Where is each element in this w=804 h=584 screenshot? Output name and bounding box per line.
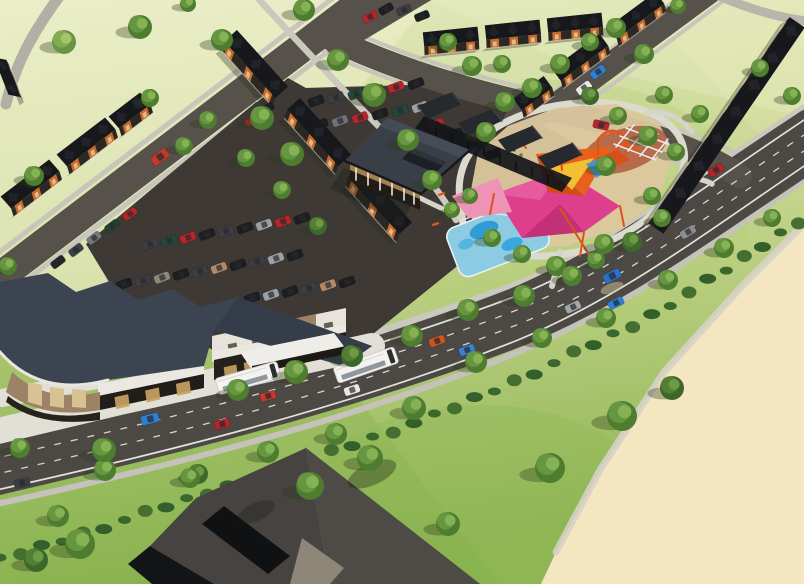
tree-canopy-light [721, 241, 730, 250]
tree-canopy-light [31, 169, 40, 178]
hedge-bush [774, 228, 787, 236]
tree-canopy-light [546, 457, 560, 471]
tree-canopy-light [650, 189, 658, 197]
tree-canopy-light [446, 35, 454, 43]
tree-canopy-light [366, 448, 378, 460]
tree-canopy-light [101, 441, 112, 452]
tree-canopy-light [445, 515, 456, 526]
hedge-bush [699, 274, 716, 284]
tree-canopy-light [468, 190, 475, 197]
hedge-bush [386, 427, 401, 439]
hedge-bush [664, 302, 677, 310]
tree-canopy-light [137, 18, 148, 29]
tree-canopy-light [569, 269, 578, 278]
retail-corner-window [28, 382, 42, 406]
hedge-bush [606, 329, 619, 337]
tree-canopy-light [629, 235, 638, 244]
hedge-bush [344, 441, 361, 451]
tree-canopy-light [588, 89, 596, 97]
hedge-bush [366, 433, 379, 441]
hedge-bush [720, 267, 733, 275]
tree-canopy-light [219, 32, 229, 42]
tree-canopy-light [333, 426, 343, 436]
tree-canopy-light [411, 399, 422, 410]
tree-canopy-light [603, 159, 612, 168]
retail-corner-window [50, 387, 64, 408]
tree-canopy-light [301, 2, 311, 12]
aerial-site-rendering [0, 0, 804, 584]
tree-canopy-light [490, 231, 498, 239]
tree-canopy-light [529, 81, 538, 90]
tree-canopy-light [265, 444, 275, 454]
tree-canopy-light [662, 88, 670, 96]
hedge-bush [157, 502, 174, 512]
hedge-bush [95, 524, 112, 534]
tree-canopy-light [520, 247, 528, 255]
tree-canopy-light [603, 311, 612, 320]
tree-canopy-light [316, 219, 324, 227]
hedge-bush [180, 494, 193, 502]
tree-canopy-light [594, 253, 602, 261]
hedge-bush [488, 387, 501, 395]
tree-canopy-light [616, 109, 624, 117]
tree-canopy-light [660, 211, 668, 219]
tree-canopy-light [76, 533, 90, 547]
tree-canopy-light [502, 95, 511, 104]
tree-canopy-light [280, 183, 288, 191]
hedge-bush [643, 309, 660, 319]
tree-canopy-light [669, 379, 680, 390]
tree-canopy-light [483, 125, 492, 134]
hedge-bush [428, 410, 441, 418]
tree-canopy-light [235, 382, 245, 392]
tree-canopy-light [588, 35, 596, 43]
tree-canopy-light [758, 61, 766, 69]
tree-canopy-light [206, 113, 214, 121]
tree-canopy-light [539, 331, 548, 340]
hedge-bush [737, 250, 752, 262]
hedge-bush [754, 242, 771, 252]
hedge-bush [681, 286, 696, 298]
tree-canopy-light [465, 302, 475, 312]
tree-canopy-light [6, 259, 14, 267]
tree-canopy-light [469, 59, 478, 68]
tree-canopy-light [306, 476, 319, 489]
tree-canopy-light [259, 109, 270, 120]
tree-canopy-light [618, 405, 632, 419]
tree-canopy-light [553, 259, 562, 268]
tree-canopy-light [349, 348, 359, 358]
hedge-bush [566, 345, 581, 357]
tree-canopy-light [450, 204, 457, 211]
tree-canopy-light [698, 107, 706, 115]
gable-window [469, 44, 473, 49]
retail-corner-window [72, 389, 86, 408]
hedge-bush [548, 359, 561, 367]
scene-canvas [0, 0, 804, 584]
tree-canopy-light [187, 471, 196, 480]
tree-canopy-light [473, 354, 483, 364]
tree-canopy-light [790, 89, 798, 97]
tree-canopy-light [557, 57, 566, 66]
tree-canopy-light [244, 151, 252, 159]
hedge-bush [447, 402, 462, 414]
gable-window [512, 39, 516, 44]
tree-canopy-light [335, 52, 345, 62]
tree-canopy-light [17, 441, 26, 450]
tree-canopy-light [148, 91, 156, 99]
hedge-bush [507, 374, 522, 386]
hedge-bush [324, 444, 339, 456]
roof-ridge [649, 0, 657, 7]
tree-canopy-light [289, 145, 300, 156]
tree-canopy-light [61, 33, 72, 44]
hedge-bush [138, 505, 153, 517]
tree-canopy-light [33, 551, 44, 562]
tree-canopy-light [55, 508, 65, 518]
gable-window [531, 37, 535, 42]
tree-canopy-light [674, 145, 682, 153]
tree-canopy-light [770, 211, 778, 219]
tree-canopy-light [500, 57, 508, 65]
tree-canopy-light [182, 139, 190, 147]
tree-canopy-light [613, 21, 622, 30]
tree-canopy-light [371, 86, 382, 97]
gable-window [493, 41, 497, 46]
tree-canopy-light [405, 132, 415, 142]
tree-canopy-light [293, 363, 304, 374]
tree-canopy-light [676, 0, 683, 7]
hedge-bush [118, 516, 131, 524]
hedge-bush [526, 370, 543, 380]
tree-canopy-light [429, 173, 438, 182]
tree-canopy-light [641, 47, 650, 56]
tree-canopy-light [645, 129, 654, 138]
tree-canopy-light [102, 462, 112, 472]
hedge-bush [585, 340, 602, 350]
hedge-bush [625, 321, 640, 333]
gable-window [555, 34, 559, 39]
tree-canopy-light [409, 328, 419, 338]
hedge-bush [466, 392, 483, 402]
tree-canopy-light [601, 237, 610, 246]
gable-window [574, 32, 578, 37]
tree-canopy-light [665, 273, 674, 282]
tree-canopy-light [521, 288, 531, 298]
